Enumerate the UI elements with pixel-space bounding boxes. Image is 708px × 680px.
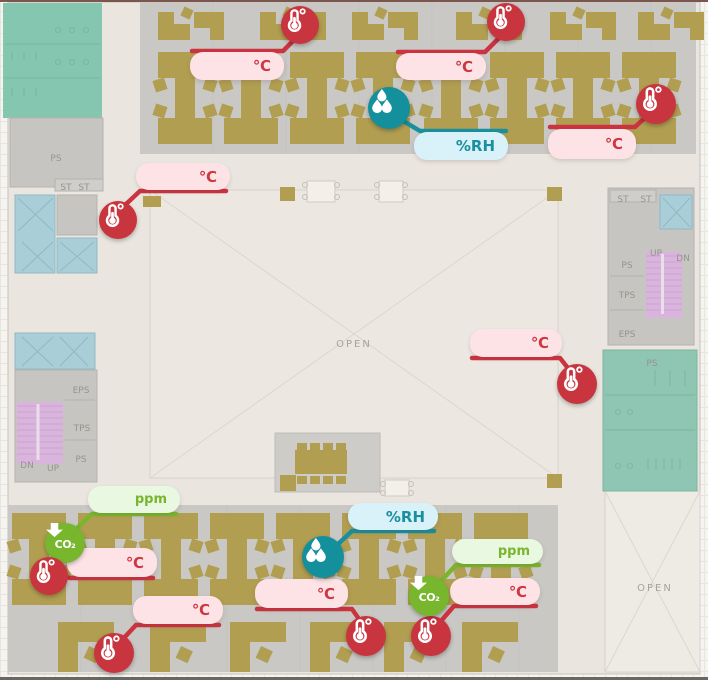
down-arrow-icon: [45, 523, 64, 538]
room-label-ps: PS: [646, 359, 657, 369]
temperature-sensor-icon[interactable]: [94, 633, 134, 673]
temperature-pill-label: ℃: [253, 57, 271, 75]
stair-label-dn: DN: [20, 461, 34, 471]
temperature-pill[interactable]: ℃: [190, 52, 284, 80]
stair-core-right: ST ST PS TPS EPS UP DN: [608, 188, 694, 345]
temperature-pill-label: ℃: [509, 583, 527, 601]
thermometer-icon: [94, 633, 122, 661]
temperature-pill[interactable]: ℃: [255, 579, 348, 608]
co2-icon-label: CO₂: [55, 539, 76, 550]
temperature-pill-label: ℃: [605, 135, 623, 153]
co2-pill[interactable]: ppm: [88, 486, 180, 513]
water-drops-icon: [368, 87, 396, 115]
temperature-pill[interactable]: ℃: [396, 53, 486, 80]
open-area-label: OPEN: [637, 583, 673, 594]
water-drops-icon: [302, 536, 330, 564]
room-label-ps: PS: [621, 261, 632, 271]
temperature-sensor-icon[interactable]: [346, 616, 386, 656]
humidity-sensor-icon[interactable]: [302, 536, 344, 578]
room-label-st: ST: [60, 183, 72, 193]
temperature-pill[interactable]: ℃: [548, 129, 636, 159]
thermometer-icon: [487, 3, 514, 30]
restroom-top-left: [3, 3, 102, 118]
thermometer-icon: [346, 616, 374, 644]
room-label-tps: TPS: [73, 424, 91, 434]
room-label-tps: TPS: [618, 291, 636, 301]
temperature-sensor-icon[interactable]: [99, 201, 137, 239]
top-frame-line: [0, 0, 708, 2]
stair-label-up: UP: [47, 464, 60, 474]
humidity-pill[interactable]: %RH: [414, 132, 508, 160]
room-label-st: ST: [617, 195, 629, 205]
temperature-pill-label: ℃: [317, 585, 335, 603]
co2-pill-label: ppm: [135, 492, 167, 507]
temperature-pill-label: ℃: [199, 168, 217, 186]
temperature-pill[interactable]: ℃: [450, 578, 540, 605]
temperature-sensor-icon[interactable]: [636, 84, 676, 124]
down-arrow-icon: [409, 576, 428, 591]
stair-label-up: UP: [650, 249, 663, 259]
temperature-sensor-icon[interactable]: [487, 3, 525, 41]
floorplan-canvas: OPEN OPEN PS ST ST: [0, 0, 708, 680]
temperature-sensor-icon[interactable]: [557, 364, 597, 404]
humidity-pill-label: %RH: [456, 137, 495, 155]
humidity-pill[interactable]: %RH: [348, 503, 438, 530]
room-label-ps: PS: [75, 455, 86, 465]
room-label-eps: EPS: [619, 330, 636, 340]
room-label-eps: EPS: [73, 386, 90, 396]
restroom-right: PS: [603, 350, 697, 491]
thermometer-icon: [636, 84, 664, 112]
temperature-sensor-icon[interactable]: [281, 6, 319, 44]
temperature-sensor-icon[interactable]: [411, 616, 451, 656]
room-label-ps: PS: [50, 154, 61, 164]
temperature-sensor-icon[interactable]: [30, 557, 68, 595]
temperature-pill[interactable]: ℃: [133, 596, 223, 624]
stair-label-dn: DN: [676, 254, 690, 264]
thermometer-icon: [30, 557, 57, 584]
temperature-pill-label: ℃: [531, 334, 549, 352]
thermometer-icon: [557, 364, 585, 392]
co2-icon-label: CO₂: [419, 592, 440, 603]
co2-pill[interactable]: ppm: [452, 539, 543, 564]
thermometer-icon: [99, 201, 126, 228]
room-label-st: ST: [640, 195, 652, 205]
temperature-pill[interactable]: ℃: [136, 163, 230, 190]
atrium-open-label: OPEN: [336, 339, 372, 350]
humidity-sensor-icon[interactable]: [368, 87, 410, 129]
temperature-pill[interactable]: ℃: [470, 329, 562, 357]
co2-sensor-icon[interactable]: CO₂: [409, 576, 449, 616]
temperature-pill-label: ℃: [455, 58, 473, 76]
temperature-pill-label: ℃: [192, 601, 210, 619]
thermometer-icon: [411, 616, 439, 644]
room-label-st: ST: [78, 183, 90, 193]
temperature-pill-label: ℃: [126, 554, 144, 572]
ps-room-top-left: PS ST ST: [10, 118, 103, 193]
co2-pill-label: ppm: [498, 544, 530, 559]
stair-core-left: EPS TPS PS DN UP: [15, 333, 97, 482]
thermometer-icon: [281, 6, 308, 33]
humidity-pill-label: %RH: [386, 508, 425, 526]
open-area: OPEN: [605, 491, 700, 672]
floorplan-drawing: OPEN OPEN PS ST ST: [0, 0, 708, 680]
